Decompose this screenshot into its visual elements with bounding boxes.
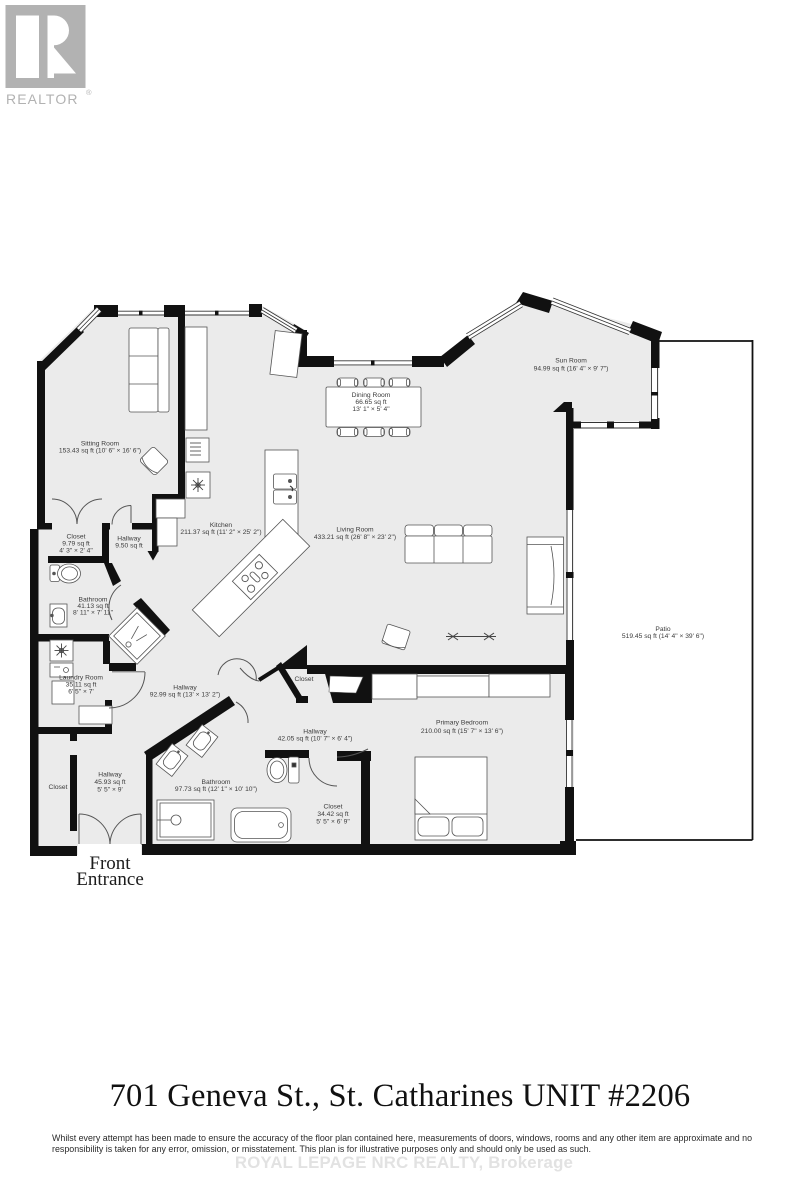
svg-text:Laundry Room: Laundry Room bbox=[59, 675, 103, 682]
svg-text:5' 5" × 6' 9": 5' 5" × 6' 9" bbox=[316, 818, 350, 825]
svg-text:94.99 sq ft (16' 4" × 9' 7"): 94.99 sq ft (16' 4" × 9' 7") bbox=[534, 366, 609, 373]
svg-text:211.37 sq ft (11' 2" × 25' 2"): 211.37 sq ft (11' 2" × 25' 2") bbox=[180, 529, 261, 536]
svg-text:66.65 sq ft: 66.65 sq ft bbox=[355, 399, 386, 406]
svg-text:Closet: Closet bbox=[324, 804, 343, 811]
svg-text:153.43 sq ft (10' 6" × 16' 6"): 153.43 sq ft (10' 6" × 16' 6") bbox=[59, 448, 141, 455]
svg-text:9.79 sq ft: 9.79 sq ft bbox=[62, 541, 90, 548]
svg-text:Hallway: Hallway bbox=[303, 729, 327, 736]
svg-text:Closet: Closet bbox=[49, 784, 68, 791]
svg-text:Closet: Closet bbox=[67, 534, 86, 541]
svg-text:92.99 sq ft (13' × 13' 2"): 92.99 sq ft (13' × 13' 2") bbox=[150, 692, 221, 699]
svg-text:Primary Bedroom: Primary Bedroom bbox=[436, 720, 488, 727]
svg-text:519.45 sq ft (14' 4" × 39' 6"): 519.45 sq ft (14' 4" × 39' 6") bbox=[622, 633, 704, 640]
svg-text:35.11 sq ft: 35.11 sq ft bbox=[66, 682, 97, 689]
svg-text:34.42 sq ft: 34.42 sq ft bbox=[317, 811, 348, 818]
svg-text:9.50 sq ft: 9.50 sq ft bbox=[115, 543, 143, 550]
svg-text:Kitchen: Kitchen bbox=[210, 522, 233, 529]
svg-text:45.93 sq ft: 45.93 sq ft bbox=[94, 779, 125, 786]
svg-text:Sun Room: Sun Room bbox=[555, 358, 587, 365]
svg-text:Bathroom: Bathroom bbox=[202, 779, 231, 786]
svg-text:8' 11" × 7' 11": 8' 11" × 7' 11" bbox=[73, 610, 114, 617]
svg-text:97.73 sq ft (12' 1" × 10' 10"): 97.73 sq ft (12' 1" × 10' 10") bbox=[175, 786, 257, 793]
svg-text:Patio: Patio bbox=[655, 626, 671, 633]
svg-text:5' 5" × 9': 5' 5" × 9' bbox=[97, 786, 123, 793]
svg-text:Hallway: Hallway bbox=[98, 772, 122, 779]
svg-text:Living Room: Living Room bbox=[336, 527, 374, 534]
svg-text:Closet: Closet bbox=[295, 676, 314, 683]
svg-text:433.21 sq ft (26' 8" × 23' 2"): 433.21 sq ft (26' 8" × 23' 2") bbox=[314, 534, 396, 541]
svg-text:42.05 sq ft (10' 7" × 6' 4"): 42.05 sq ft (10' 7" × 6' 4") bbox=[278, 736, 353, 743]
svg-text:4' 3" × 2' 4": 4' 3" × 2' 4" bbox=[59, 548, 93, 555]
svg-text:Hallway: Hallway bbox=[117, 536, 141, 543]
svg-text:210.00 sq ft (15' 7" × 13' 6"): 210.00 sq ft (15' 7" × 13' 6") bbox=[421, 728, 503, 735]
svg-text:Hallway: Hallway bbox=[173, 685, 197, 692]
svg-text:13' 1" × 5' 4": 13' 1" × 5' 4" bbox=[352, 406, 390, 413]
svg-text:Dining Room: Dining Room bbox=[352, 392, 391, 399]
svg-text:6' 5" × 7': 6' 5" × 7' bbox=[68, 689, 94, 696]
svg-text:Sitting Room: Sitting Room bbox=[81, 441, 120, 448]
